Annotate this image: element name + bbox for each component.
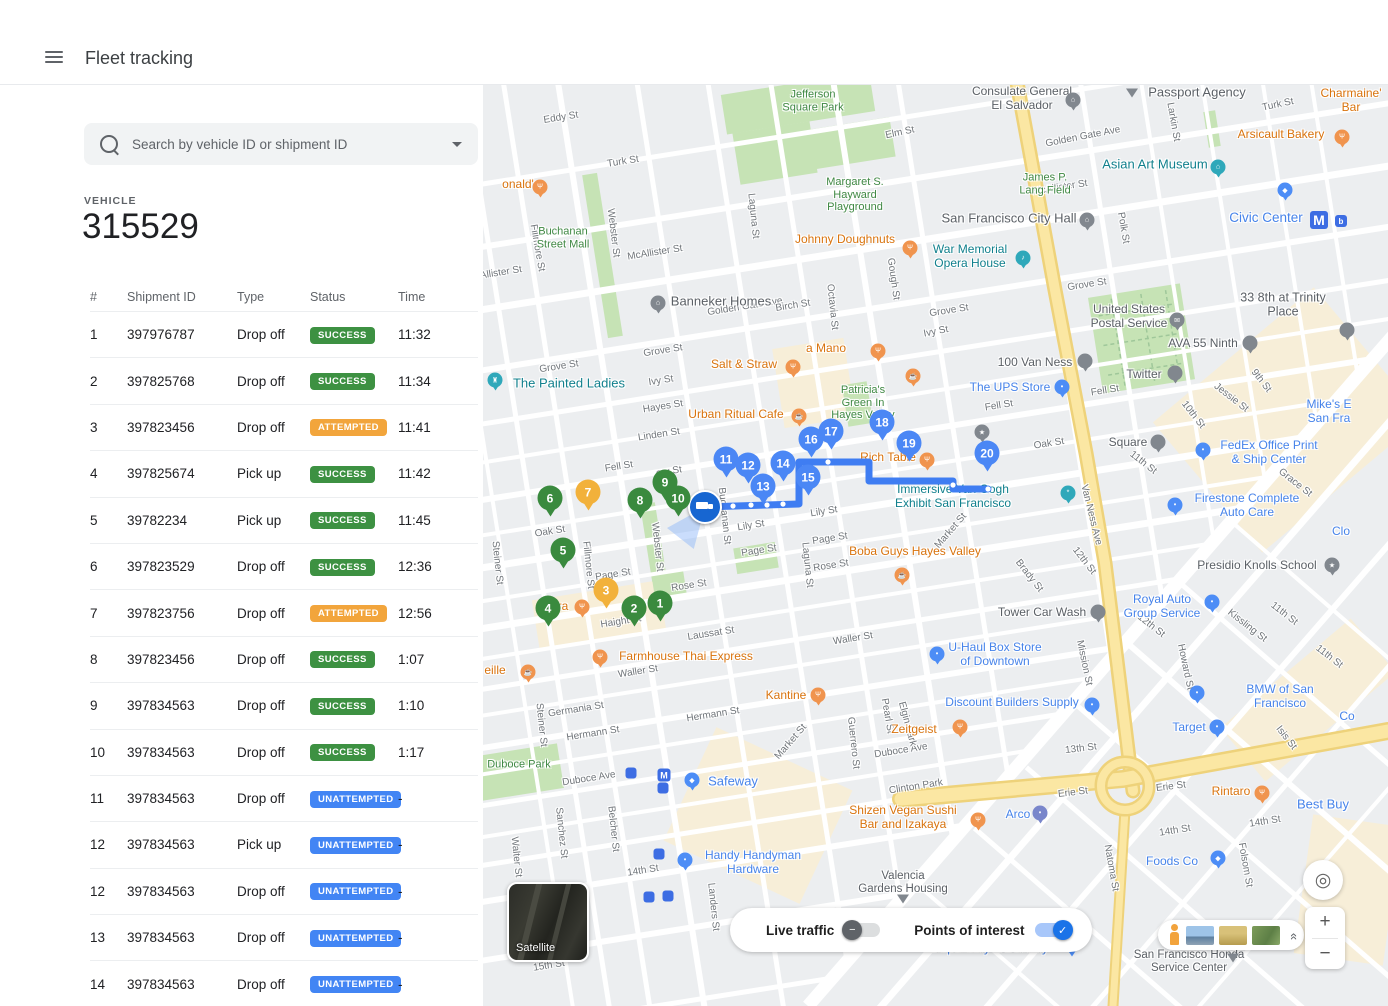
- collapse-icon[interactable]: «: [1287, 932, 1302, 937]
- live-traffic-toggle[interactable]: −: [844, 923, 880, 937]
- zoom-control: + −: [1305, 907, 1345, 969]
- status-badge: SUCCESS: [310, 512, 375, 529]
- table-row[interactable]: 7 397823756 Drop off ATTEMPTED 12:56: [90, 590, 478, 636]
- satellite-layer-button[interactable]: Satellite: [507, 882, 589, 962]
- search-box[interactable]: [84, 123, 478, 165]
- table-row[interactable]: 5 39782234 Pick up SUCCESS 11:45: [90, 498, 478, 544]
- status-badge: SUCCESS: [310, 466, 375, 483]
- col-shipment-id: Shipment ID: [127, 290, 237, 304]
- status-badge: UNATTEMPTED: [310, 883, 401, 900]
- search-input[interactable]: [130, 136, 452, 153]
- table-row[interactable]: 4 397825674 Pick up SUCCESS 11:42: [90, 451, 478, 497]
- pegman-bar: «: [1158, 920, 1304, 950]
- vehicle-label: VEHICLE: [84, 195, 137, 207]
- search-icon: [100, 135, 118, 153]
- status-badge: ATTEMPTED: [310, 605, 387, 622]
- vehicle-truck-icon[interactable]: [688, 490, 722, 524]
- table-row[interactable]: 9 397834563 Drop off SUCCESS 1:10: [90, 683, 478, 729]
- imagery-thumbnail[interactable]: [1186, 926, 1214, 945]
- status-badge: ATTEMPTED: [310, 419, 387, 436]
- table-row[interactable]: 1 397976787 Drop off SUCCESS 11:32: [90, 312, 478, 358]
- shipments-table: # Shipment ID Type Status Time 1 3979767…: [0, 283, 478, 1006]
- status-badge: UNATTEMPTED: [310, 930, 401, 947]
- table-row[interactable]: 3 397823456 Drop off ATTEMPTED 11:41: [90, 405, 478, 451]
- satellite-label: Satellite: [516, 942, 555, 954]
- table-row[interactable]: 6 397823529 Drop off SUCCESS 12:36: [90, 544, 478, 590]
- table-row[interactable]: 11 397834563 Drop off UNATTEMPTED -: [90, 776, 478, 822]
- top-bar: Fleet tracking: [0, 0, 1388, 85]
- table-row[interactable]: 14 397834563 Drop off UNATTEMPTED -: [90, 961, 478, 1006]
- table-header: # Shipment ID Type Status Time: [90, 283, 478, 312]
- shipments-panel: VEHICLE 315529 # Shipment ID Type Status…: [0, 85, 483, 1006]
- status-badge: SUCCESS: [310, 559, 375, 576]
- col-time: Time: [398, 290, 458, 304]
- table-row[interactable]: 12 397834563 Pick up UNATTEMPTED -: [90, 822, 478, 868]
- zoom-out-button[interactable]: −: [1305, 939, 1345, 970]
- col-type: Type: [237, 290, 310, 304]
- imagery-thumbnail[interactable]: [1219, 926, 1247, 945]
- my-location-button[interactable]: ◎: [1303, 860, 1343, 900]
- points-of-interest-label: Points of interest: [914, 923, 1024, 938]
- status-badge: SUCCESS: [310, 327, 375, 344]
- fleet-tracking-app: Fleet tracking VEHICLE 315529 # Shipment…: [0, 0, 1388, 1006]
- table-row[interactable]: 12 397834563 Drop off UNATTEMPTED -: [90, 869, 478, 915]
- status-badge: UNATTEMPTED: [310, 837, 401, 854]
- col-num: #: [90, 290, 127, 304]
- points-of-interest-toggle[interactable]: ✓: [1035, 923, 1071, 937]
- pegman-icon[interactable]: [1167, 924, 1181, 946]
- table-row[interactable]: 10 397834563 Drop off SUCCESS 1:17: [90, 730, 478, 776]
- status-badge: SUCCESS: [310, 744, 375, 761]
- table-row[interactable]: 8 397823456 Drop off SUCCESS 1:07: [90, 637, 478, 683]
- menu-icon[interactable]: [45, 51, 63, 63]
- table-row[interactable]: 2 397825768 Drop off SUCCESS 11:34: [90, 358, 478, 404]
- vehicle-id: 315529: [82, 207, 199, 247]
- zoom-in-button[interactable]: +: [1305, 907, 1345, 938]
- status-badge: SUCCESS: [310, 698, 375, 715]
- map-roads: [483, 85, 1388, 1006]
- map-canvas[interactable]: Eddy StTurk StTurk StElm StGolden Gate A…: [483, 85, 1388, 1006]
- chevron-down-icon[interactable]: [452, 142, 462, 147]
- page-title: Fleet tracking: [85, 48, 193, 69]
- status-badge: SUCCESS: [310, 651, 375, 668]
- status-badge: SUCCESS: [310, 373, 375, 390]
- status-badge: UNATTEMPTED: [310, 791, 401, 808]
- status-badge: UNATTEMPTED: [310, 976, 401, 993]
- live-traffic-label: Live traffic: [766, 923, 834, 938]
- col-status: Status: [310, 290, 398, 304]
- table-row[interactable]: 13 397834563 Drop off UNATTEMPTED -: [90, 915, 478, 961]
- map-toggles: Live traffic − Points of interest ✓: [730, 908, 1092, 952]
- imagery-thumbnail[interactable]: [1252, 926, 1280, 945]
